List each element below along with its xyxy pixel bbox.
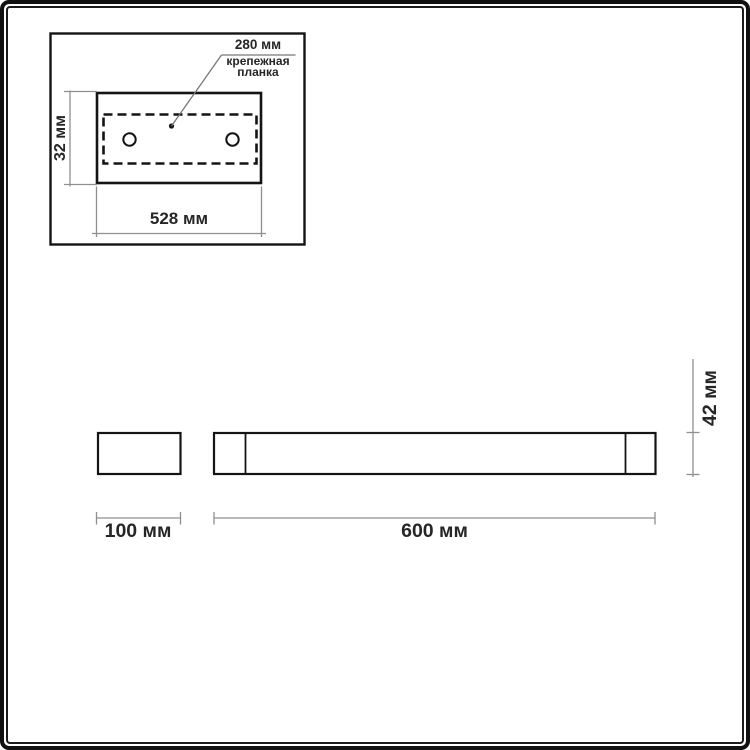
image-frame-outer-border [0,0,750,750]
fixture-dimension-diagram: 280 мм крепежная планка 32 мм 528 мм 100… [0,0,750,750]
